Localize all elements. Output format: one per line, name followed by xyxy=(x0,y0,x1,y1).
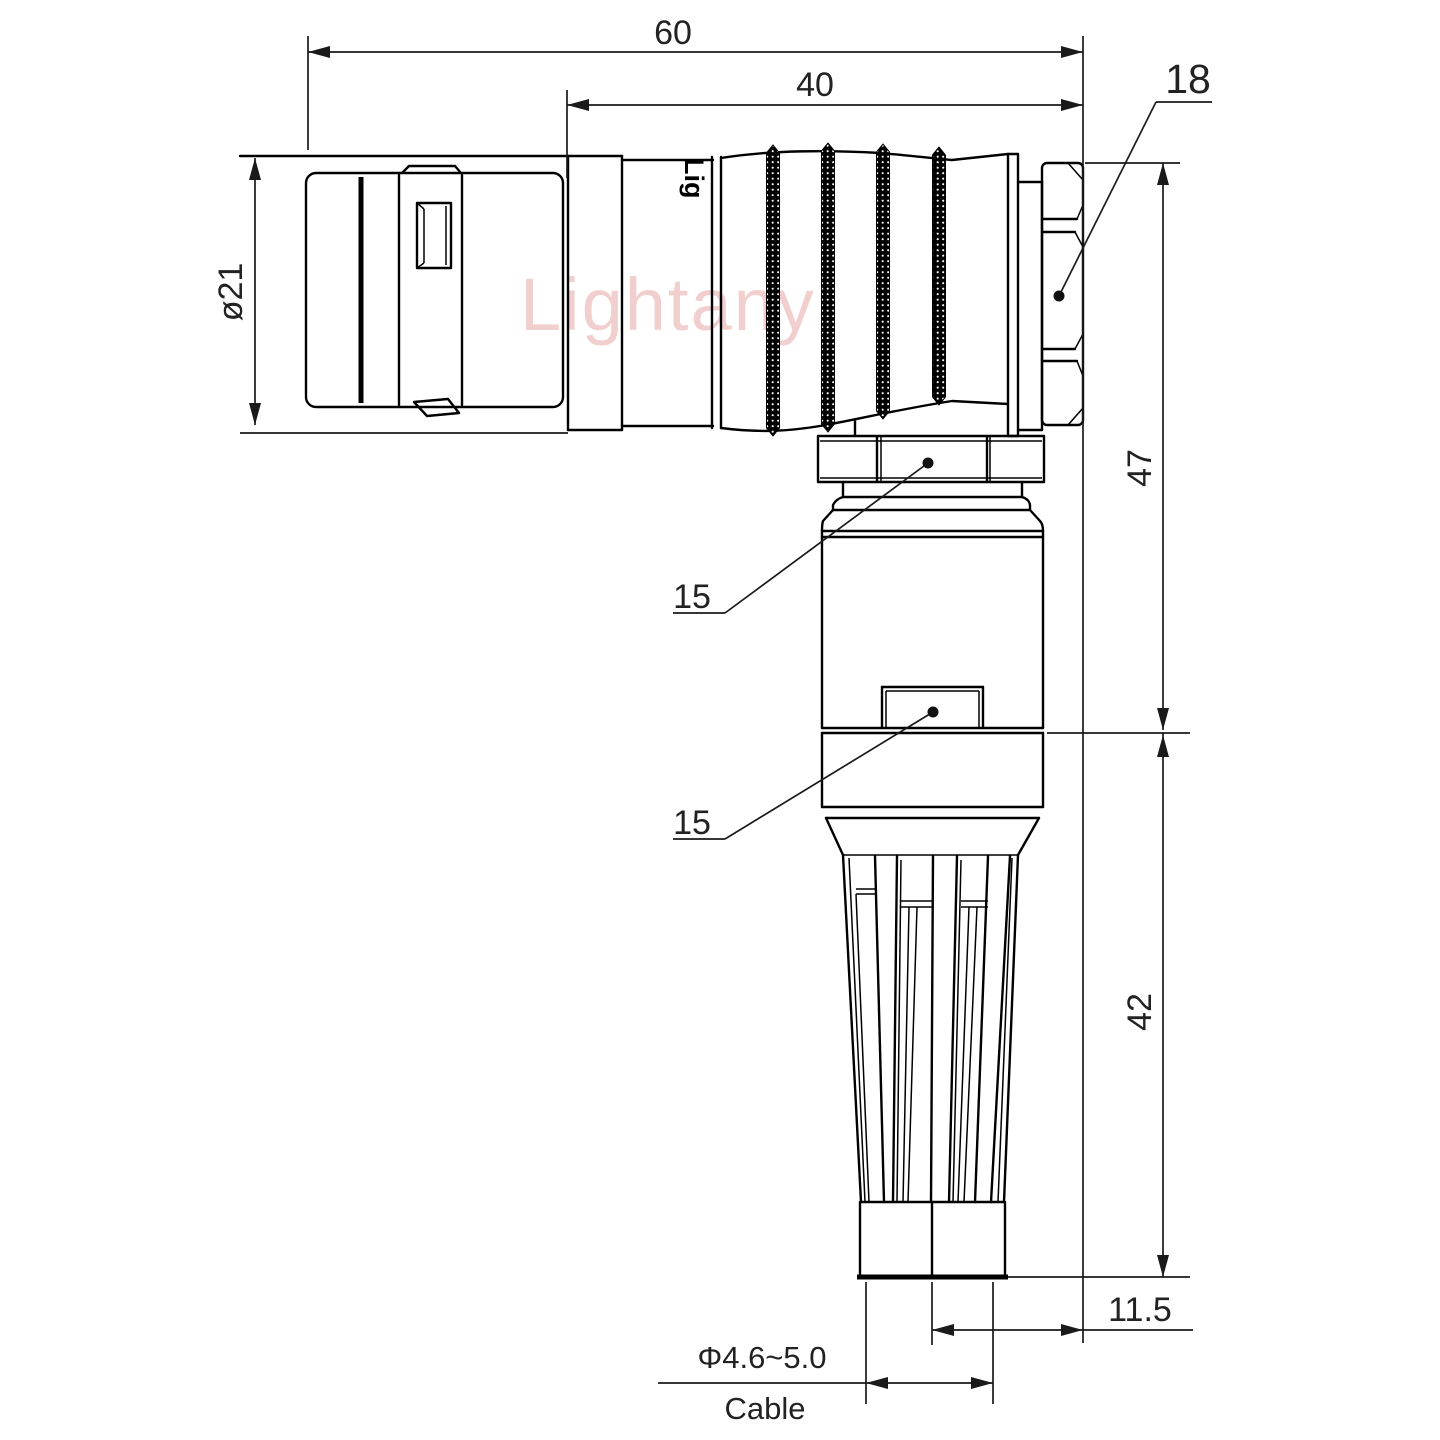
cable-label: Cable xyxy=(725,1391,806,1426)
elbow-coupling-nut xyxy=(818,420,1044,482)
knurl-strip xyxy=(877,144,890,419)
rear-flange-neck xyxy=(1008,154,1042,436)
dim-elbow-height-upper: 47 xyxy=(1085,163,1180,730)
dim-cable-axis-offset: 11.5 xyxy=(932,1282,1193,1345)
dim-overall-length-label: 60 xyxy=(654,14,692,52)
elbow-neck xyxy=(822,482,1043,531)
connector-drawing: Lightany Lig xyxy=(0,0,1440,1440)
technical-drawing-page: Lightany Lig xyxy=(0,0,1440,1440)
dim-front-diameter: ø21 xyxy=(212,158,261,425)
elbow-body xyxy=(822,531,1043,818)
callout-rear-nut: 18 xyxy=(1054,56,1213,302)
body-logo: Lig xyxy=(679,158,709,199)
dim-cable-diameter: Φ4.6~5.0 Cable xyxy=(658,1282,993,1426)
latch-window xyxy=(417,203,451,268)
dim-strain-relief-height: 42 xyxy=(1008,733,1190,1277)
strain-relief xyxy=(826,818,1039,1202)
dim-elbow-height-upper-label: 47 xyxy=(1121,449,1159,487)
knurl-strip xyxy=(767,145,780,436)
callout-elbow-body-label: 15 xyxy=(673,804,711,842)
dim-rear-section-label: 40 xyxy=(796,66,834,104)
knurl-strip xyxy=(822,143,835,432)
dim-front-diameter-label: ø21 xyxy=(212,263,250,322)
callout-rear-nut-label: 18 xyxy=(1165,56,1211,102)
cable-collar xyxy=(857,1202,1008,1277)
dim-cable-diameter-label: Φ4.6~5.0 xyxy=(697,1340,826,1375)
knurl-strip xyxy=(933,147,946,405)
dim-cable-axis-offset-label: 11.5 xyxy=(1108,1291,1172,1329)
dim-strain-relief-height-label: 42 xyxy=(1121,993,1159,1031)
callout-coupling-nut-label: 15 xyxy=(673,578,711,616)
